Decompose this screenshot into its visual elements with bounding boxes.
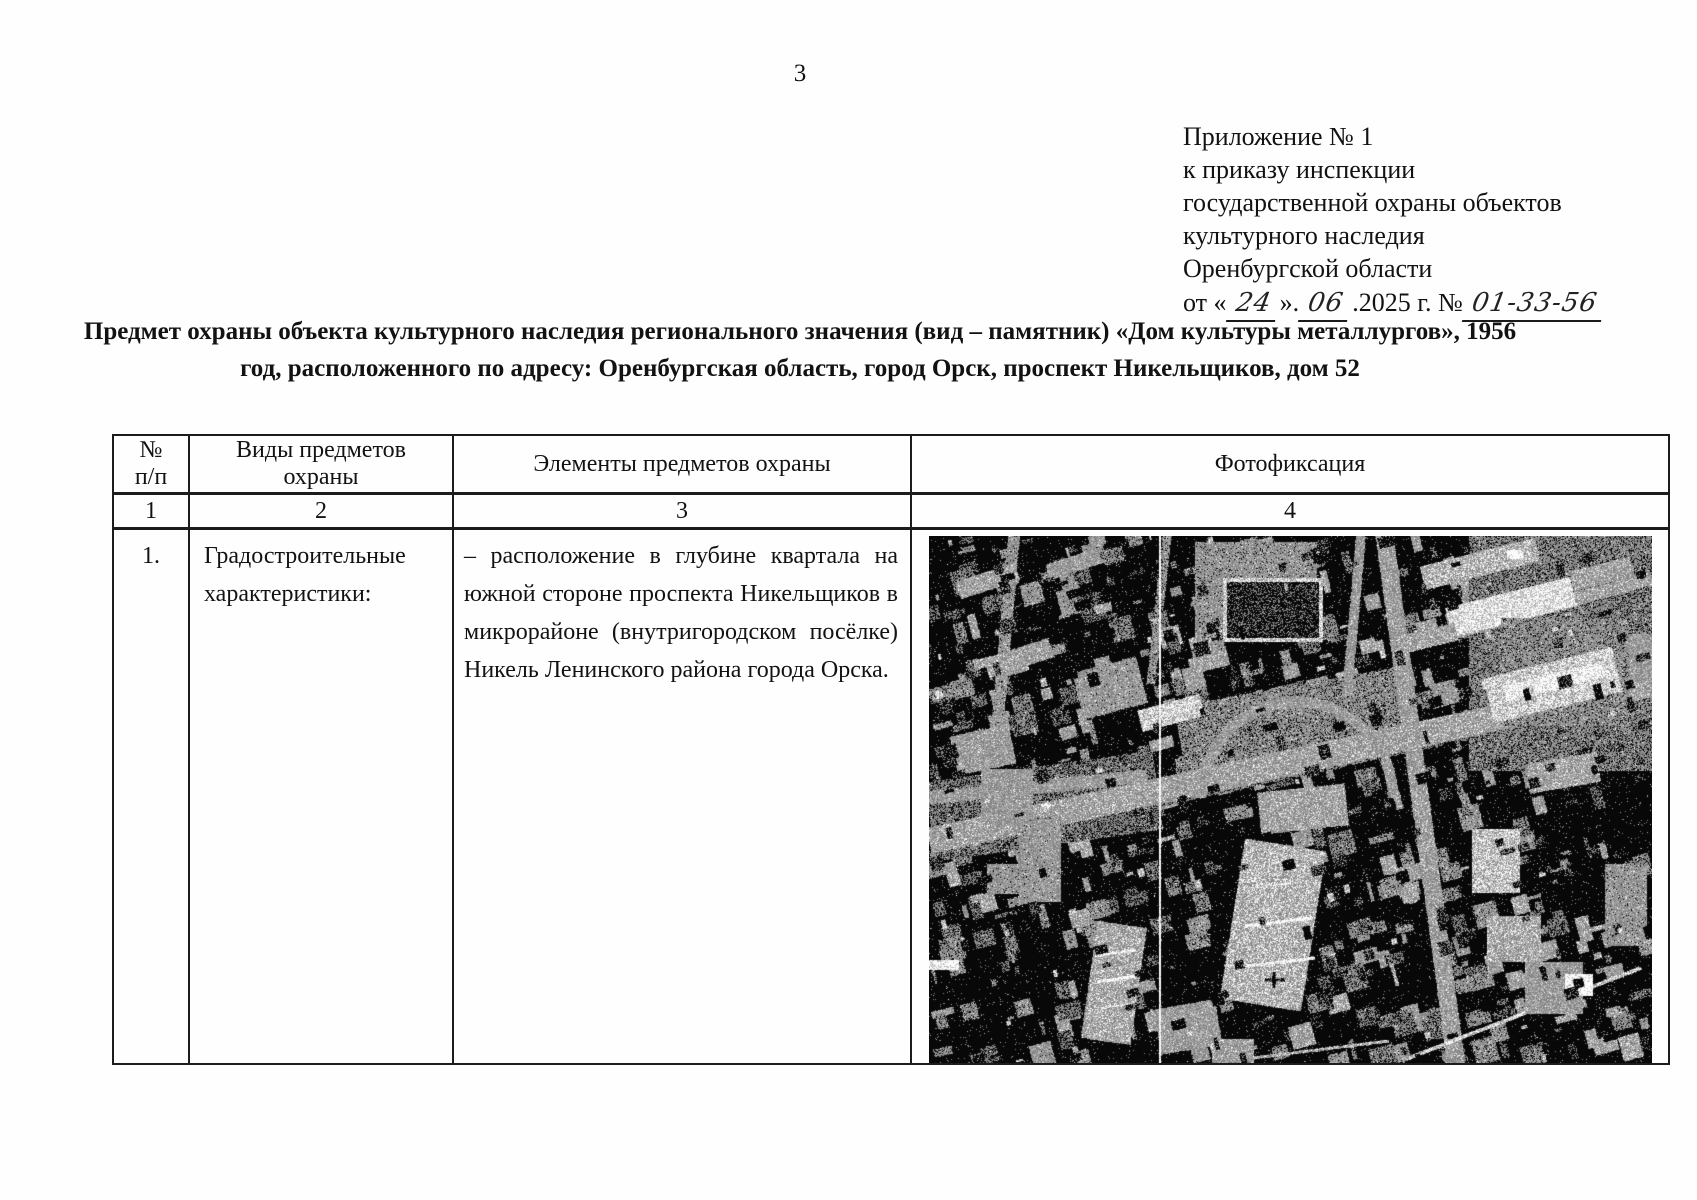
element-line-2: южной стороне проспекта Никельщиков в: [464, 575, 898, 613]
column-index-1: 1: [114, 495, 190, 530]
document-page: 3 Приложение № 1 к приказу инспекции гос…: [0, 0, 1697, 1200]
row-kind-cell: Градостроительные характеристики:: [190, 530, 454, 1063]
header-line-2: к приказу инспекции: [1183, 153, 1606, 186]
header-cell-kinds: Виды предметов охраны: [190, 436, 454, 495]
row-number-cell: 1.: [114, 530, 190, 1063]
header-line-4: культурного наследия: [1183, 219, 1606, 252]
column-index-3: 3: [454, 495, 912, 530]
header-number-line1: №: [140, 437, 163, 464]
header-number-line2: п/п: [135, 464, 167, 491]
element-line-4: Никель Ленинского района города Орска.: [464, 651, 898, 689]
header-cell-elements: Элементы предметов охраны: [454, 436, 912, 495]
header-line-3: государственной охраны объектов: [1183, 186, 1606, 219]
document-title: Предмет охраны объекта культурного насле…: [0, 313, 1600, 387]
row-photo-cell: [912, 530, 1668, 1063]
element-line-3: микрорайоне (внутригородском посёлке): [464, 613, 898, 651]
header-kinds-line1: Виды предметов: [236, 437, 406, 464]
element-line-1: – расположение в глубине квартала на: [464, 537, 898, 575]
header-cell-photo: Фотофиксация: [912, 436, 1668, 495]
kind-line-1: Градостроительные: [204, 537, 440, 575]
title-line-2: год, расположенного по адресу: Оренбургс…: [0, 350, 1600, 387]
header-cell-number: № п/п: [114, 436, 190, 495]
kind-line-2: характеристики:: [204, 575, 440, 613]
column-index-4: 4: [912, 495, 1668, 530]
header-block: Приложение № 1 к приказу инспекции госуд…: [1183, 120, 1606, 322]
title-line-1: Предмет охраны объекта культурного насле…: [0, 313, 1600, 350]
protection-table: № п/п Виды предметов охраны Элементы пре…: [112, 434, 1670, 1065]
satellite-photo: [929, 536, 1652, 1063]
header-line-5: Оренбургской области: [1183, 252, 1606, 285]
row-elements-cell: – расположение в глубине квартала на южн…: [454, 530, 912, 1063]
column-index-2: 2: [190, 495, 454, 530]
header-line-1: Приложение № 1: [1183, 120, 1606, 153]
page-number: 3: [760, 60, 840, 88]
header-kinds-line2: охраны: [283, 464, 358, 491]
